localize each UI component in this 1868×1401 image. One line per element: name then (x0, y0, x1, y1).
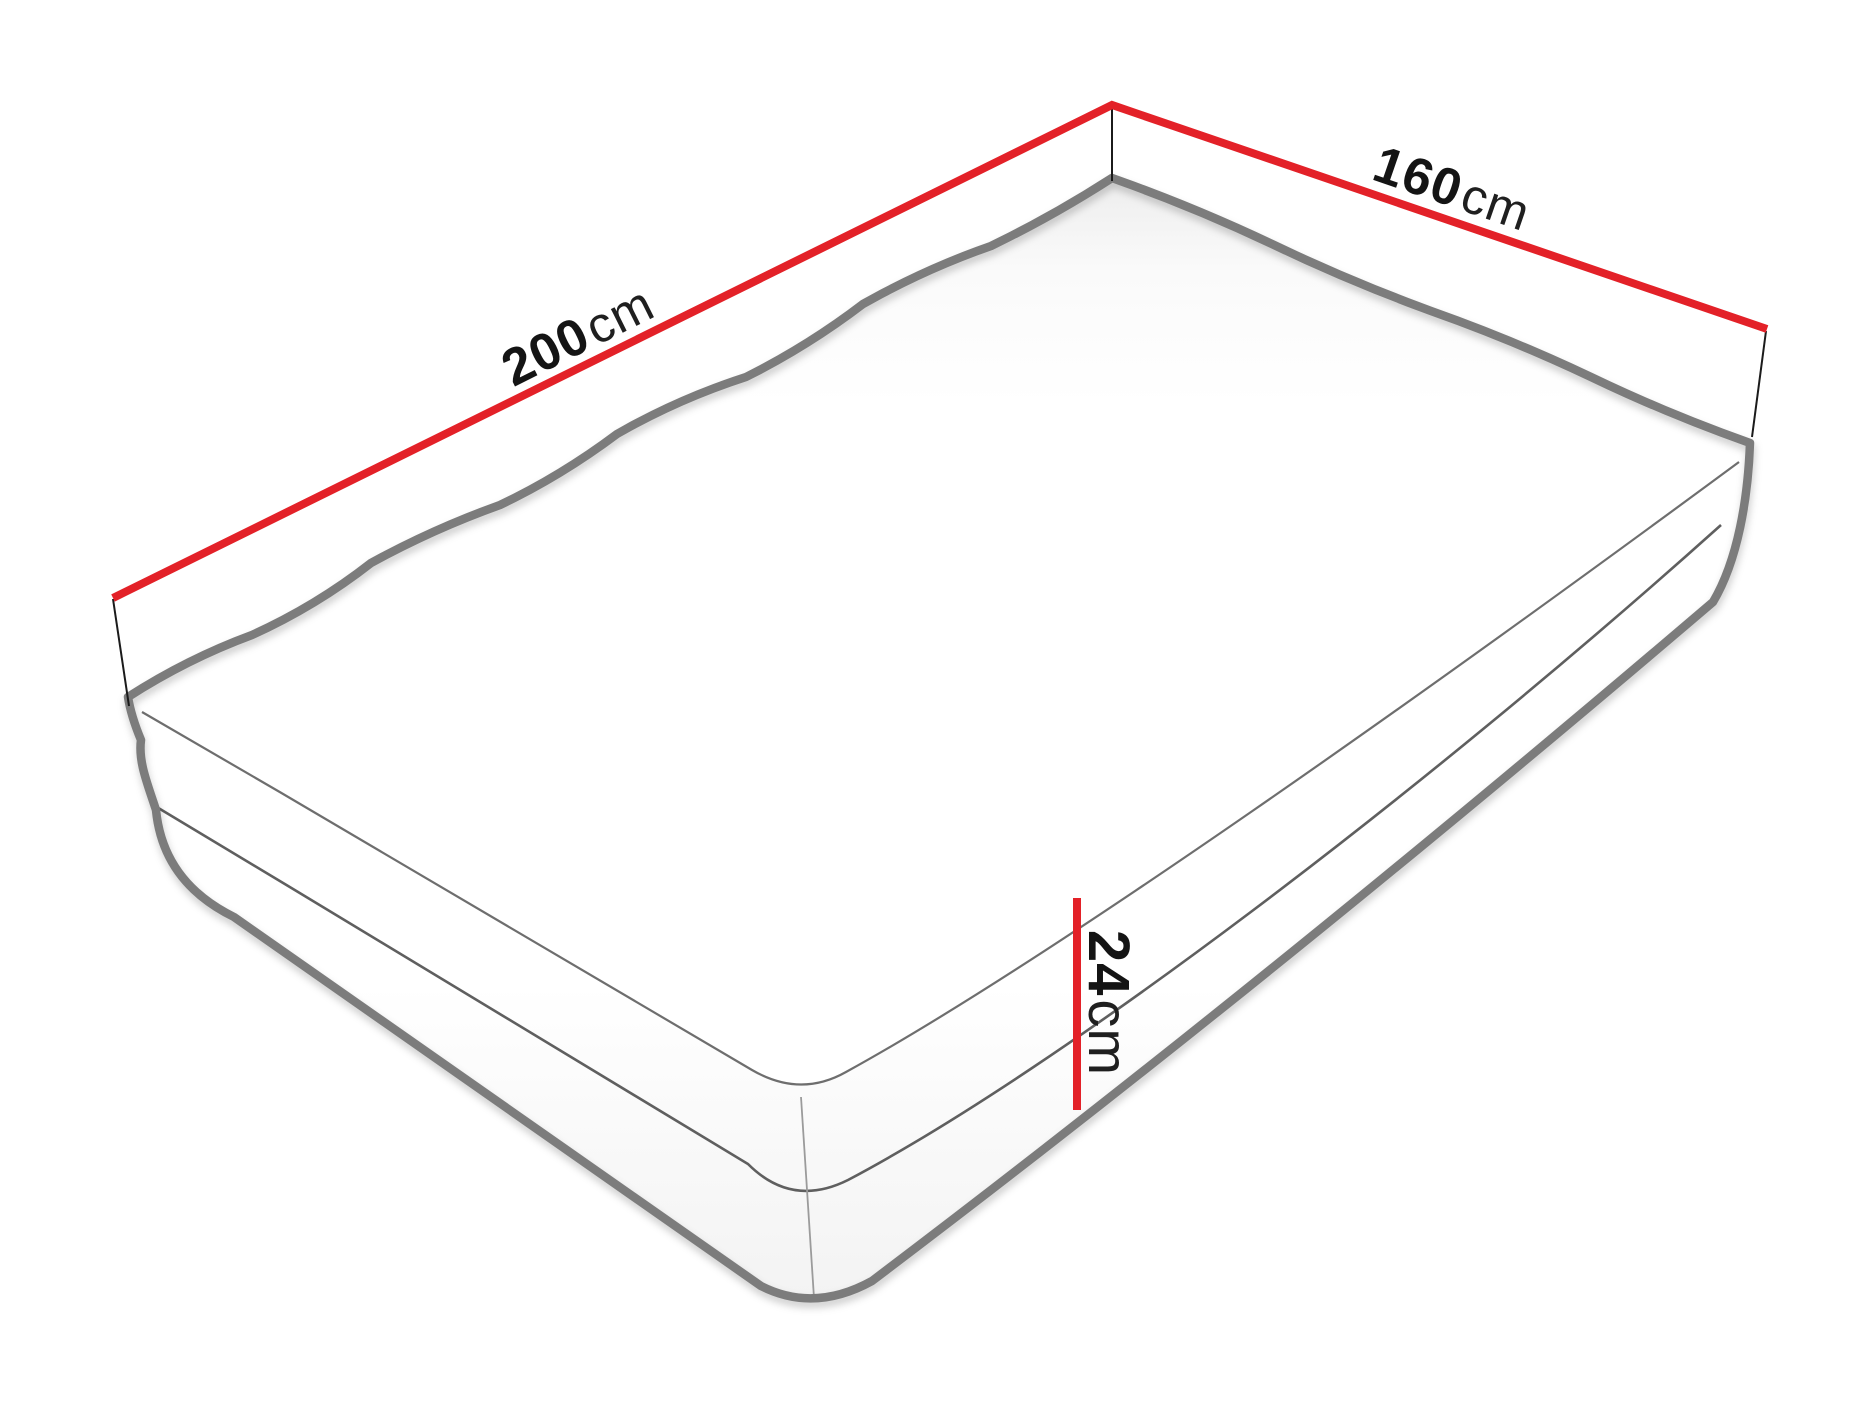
length-extension-line (113, 599, 129, 706)
mattress-drawing (0, 0, 1868, 1401)
width-extension-line (1752, 331, 1766, 437)
mattress-dimension-diagram: 200 cm 160 cm 24 cm (0, 0, 1868, 1401)
